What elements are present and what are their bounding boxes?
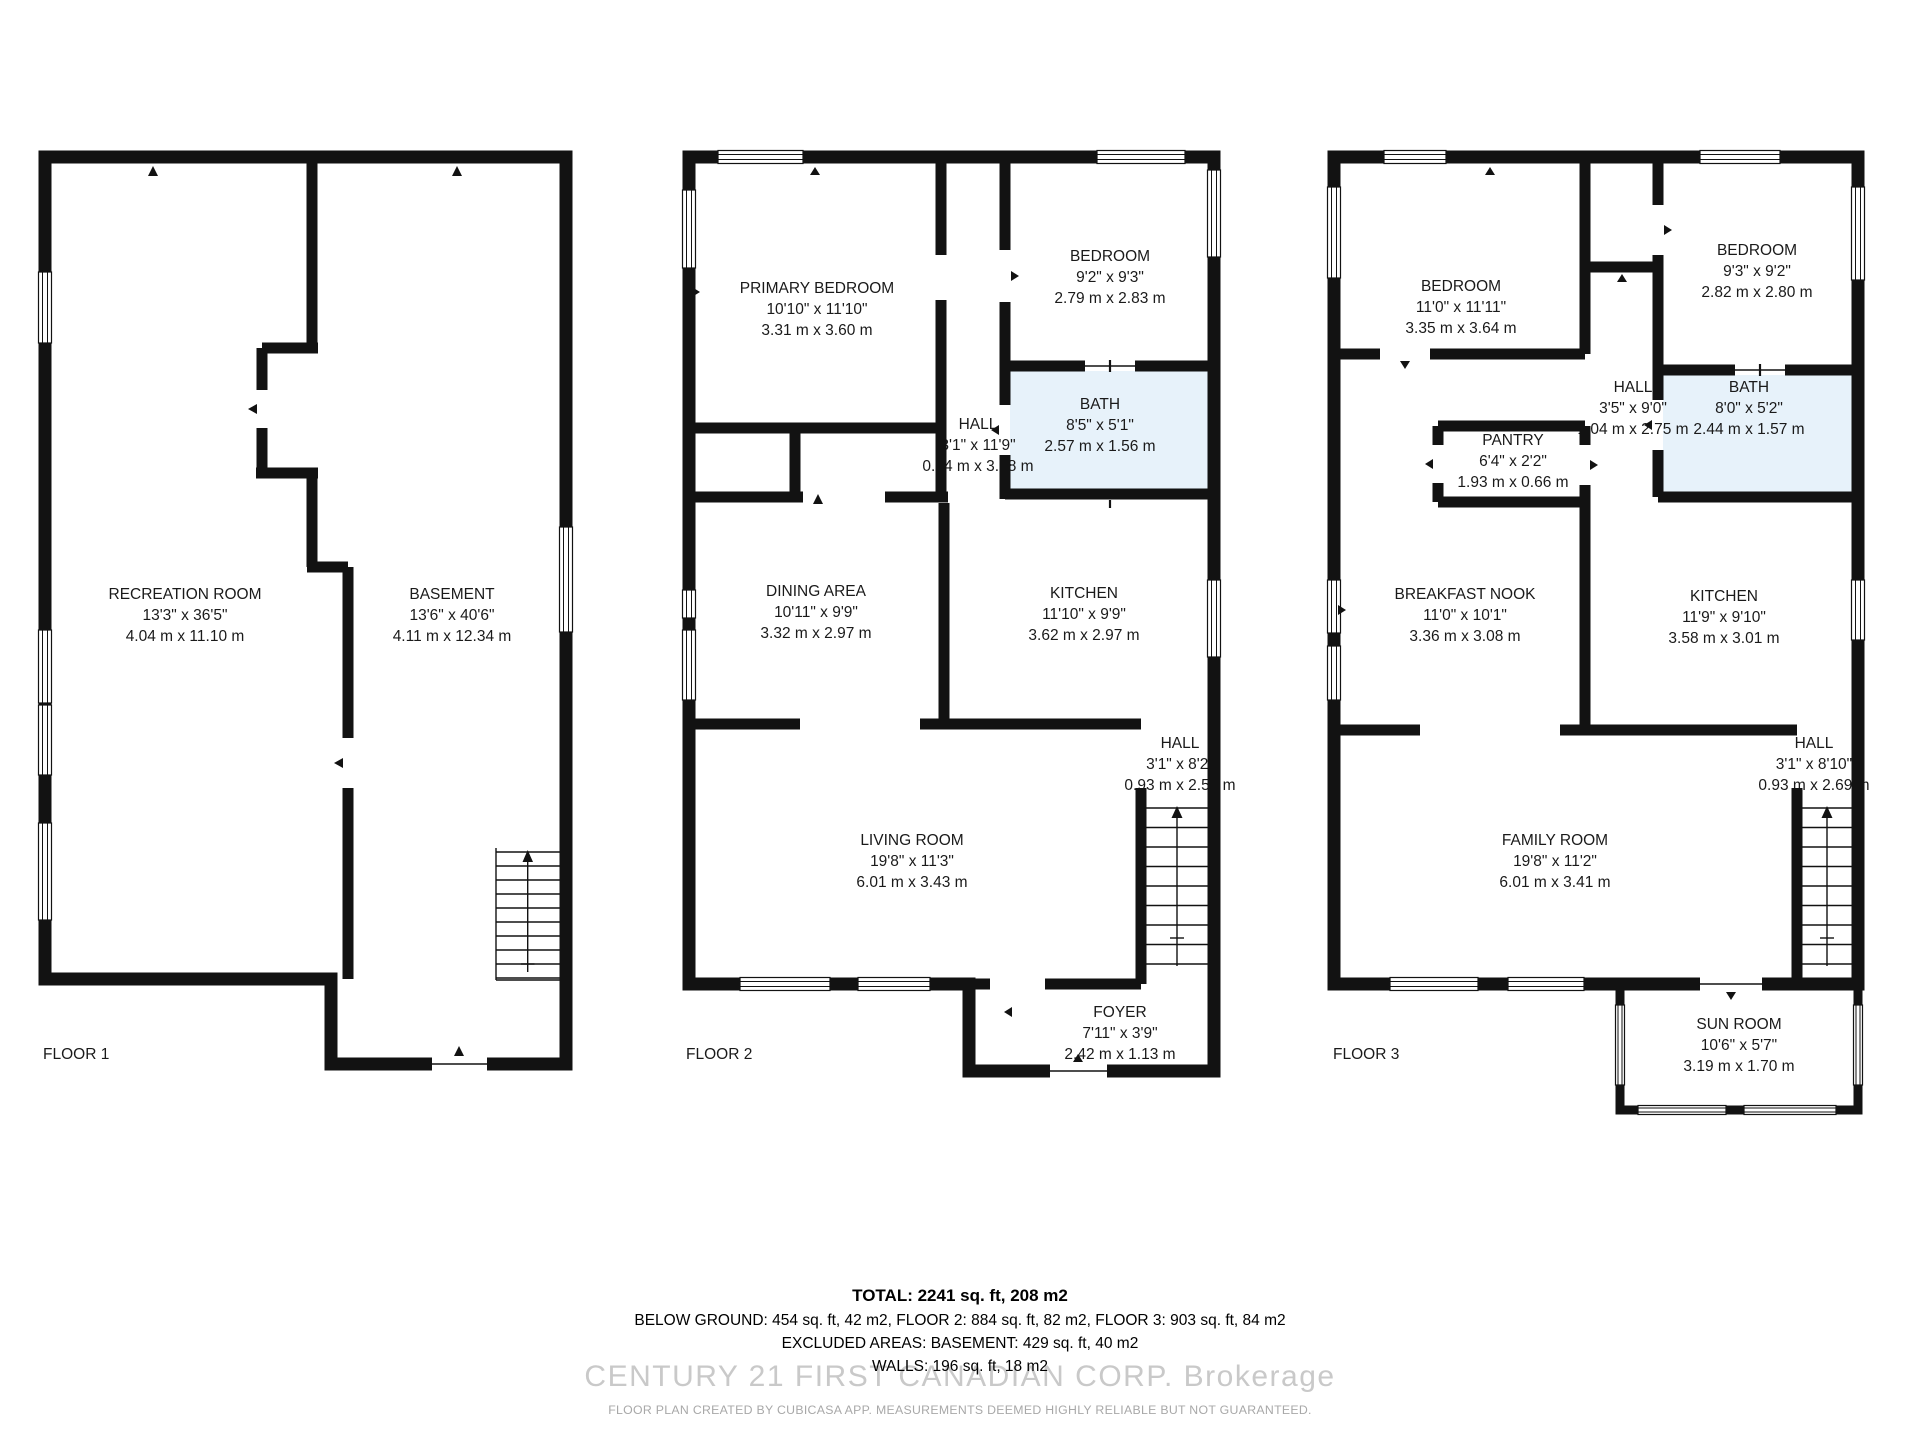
cubicasa-disclaimer: FLOOR PLAN CREATED BY CUBICASA APP. MEAS… [0,1403,1920,1417]
summary-excluded-areas: EXCLUDED AREAS: BASEMENT: 429 sq. ft, 40… [0,1335,1920,1353]
summary-by-floor: BELOW GROUND: 454 sq. ft, 42 m2, FLOOR 2… [0,1312,1920,1330]
floor1-windows [39,272,573,920]
floor3-door-arrows [1338,167,1762,1000]
floor2-walls [689,157,1214,1071]
summary-walls: WALLS: 196 sq. ft, 18 m2 [0,1358,1920,1376]
floor3-stairs [1803,806,1852,966]
floor2-door-arrows [692,167,1107,1078]
floor-plan-page: { "colors": { "wall": "#121212", "bath_f… [0,0,1920,1440]
floor2-stairs [1147,806,1208,966]
floor-plan-drawing [0,0,1920,1440]
floor1-stairs [496,848,560,980]
floor3-walls [1334,157,1858,1110]
floor1-walls [45,157,566,1064]
summary-total: TOTAL: 2241 sq. ft, 208 m2 [0,1286,1920,1306]
floor3-windows [1328,151,1865,1115]
